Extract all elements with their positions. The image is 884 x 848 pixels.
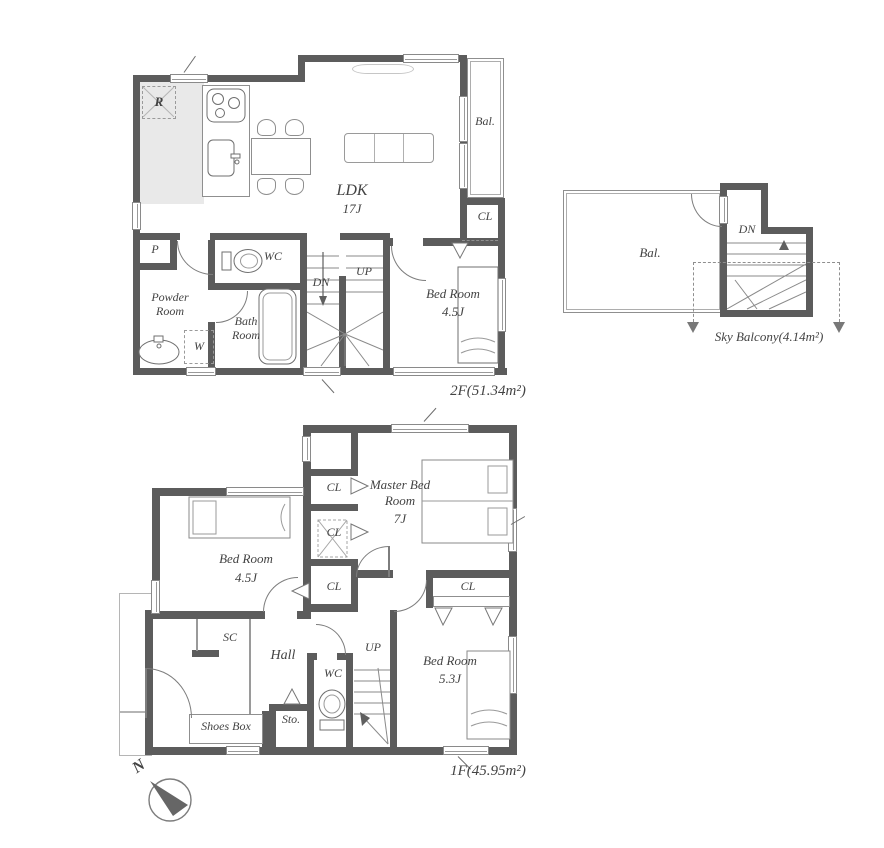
closet-open-front <box>462 240 498 241</box>
partition-line <box>196 619 198 651</box>
chair <box>285 178 304 195</box>
floorplan-page: R W <box>0 0 884 848</box>
sofa-seam <box>403 134 404 162</box>
window <box>151 580 160 614</box>
label-bedroom-a-size: 4.5J <box>220 570 272 586</box>
washer-label: W <box>185 339 213 353</box>
label-master-bedroom: Master Bed Room <box>366 477 434 508</box>
toilet <box>314 688 350 734</box>
wall <box>720 310 813 317</box>
label-up-1f: UP <box>356 640 390 654</box>
bed-master <box>421 459 514 544</box>
entrance-door-arc <box>146 668 192 718</box>
washbasin <box>136 334 182 366</box>
door-arc <box>394 580 427 612</box>
door-arc <box>391 246 426 281</box>
label-bedroom-b-size: 5.3J <box>424 671 476 687</box>
washer-space: W <box>184 330 214 364</box>
wall <box>297 611 311 619</box>
label-pantry: P <box>142 242 168 256</box>
label-closet: CL <box>465 209 505 223</box>
label-balcony: Bal. <box>464 114 506 128</box>
label-shoes-box: Shoes Box <box>191 719 261 733</box>
wall <box>426 578 433 608</box>
projection-line <box>693 262 840 263</box>
wall <box>262 711 269 747</box>
label-bath-room: Bath Room <box>222 314 270 343</box>
wall <box>133 233 180 240</box>
fridge-label: R <box>143 94 175 110</box>
label-wc-1f: WC <box>316 666 350 680</box>
label-sky-down: DN <box>729 222 765 236</box>
fold-door-mark <box>484 607 504 627</box>
door-arc <box>316 624 346 655</box>
wall <box>390 610 397 755</box>
sky-area-label: Sky Balcony(4.14m²) <box>698 329 840 345</box>
wall <box>426 570 517 578</box>
window <box>391 424 469 433</box>
wall <box>300 240 307 375</box>
projection-line <box>693 262 694 322</box>
tv-board <box>352 64 414 74</box>
label-sc: SC <box>212 630 248 644</box>
label-closet-1: CL <box>314 480 354 494</box>
window <box>303 367 341 376</box>
sofa <box>344 133 434 163</box>
wall <box>133 263 177 270</box>
wall <box>192 650 219 657</box>
window <box>393 367 495 376</box>
vent-tick <box>184 56 196 73</box>
label-closet-2: CL <box>314 525 354 539</box>
label-closet-right: CL <box>448 579 488 593</box>
label-bedroom-a: Bed Room <box>198 551 294 567</box>
compass-icon <box>140 770 200 830</box>
kitchen-sink <box>205 136 241 180</box>
sofa-seam <box>374 134 375 162</box>
wall <box>152 611 265 619</box>
window <box>403 54 459 63</box>
bed <box>188 494 292 540</box>
vent-tick <box>424 408 437 422</box>
stairs-2f <box>307 244 383 368</box>
label-bedroom-b: Bed Room <box>402 653 498 669</box>
door-leaf <box>145 668 147 718</box>
label-hall: Hall <box>258 648 308 665</box>
door-arc <box>356 546 389 577</box>
label-wc: WC <box>254 249 292 263</box>
label-down: DN <box>303 275 339 289</box>
window <box>186 367 216 376</box>
fold-door-mark <box>450 242 470 260</box>
chair <box>285 119 304 136</box>
fold-door-mark <box>282 688 302 706</box>
label-sky-balcony-bal: Bal. <box>628 245 672 261</box>
projection-line <box>839 262 840 322</box>
wall <box>806 227 813 317</box>
label-ldk: LDK <box>328 181 376 200</box>
stairs-1f <box>354 660 390 746</box>
wall <box>133 75 305 82</box>
fold-door-mark <box>434 607 454 627</box>
wall <box>383 245 390 375</box>
label-bedroom-2f-size: 4.5J <box>428 304 478 320</box>
chair <box>257 119 276 136</box>
door-leaf <box>388 546 390 577</box>
stove <box>205 87 249 125</box>
label-ldk-size: 17J <box>332 201 372 217</box>
window <box>170 74 208 83</box>
label-closet-3: CL <box>314 579 354 593</box>
wall <box>351 425 358 476</box>
stairs-sky <box>727 234 806 310</box>
label-powder-room: Powder Room <box>136 290 204 319</box>
window <box>443 746 489 755</box>
wall <box>307 653 314 747</box>
partition-line <box>249 619 251 715</box>
vent-tick <box>322 379 335 393</box>
wall <box>210 233 307 240</box>
label-sto: Sto. <box>273 712 309 726</box>
wall <box>311 504 358 511</box>
floor2-area-label: 2F(51.34m²) <box>428 382 548 400</box>
chair <box>257 178 276 195</box>
closet-rod <box>433 596 510 607</box>
window <box>302 436 311 462</box>
floor1-area-label: 1F(45.95m²) <box>428 762 548 780</box>
label-bedroom-2f: Bed Room <box>405 286 501 302</box>
label-up: UP <box>346 264 382 278</box>
wall <box>340 233 390 240</box>
label-master-size: 7J <box>383 511 417 527</box>
dining-table <box>251 138 311 175</box>
window <box>132 202 141 230</box>
window <box>226 746 260 755</box>
door-arc <box>177 241 213 275</box>
refrigerator: R <box>142 86 176 119</box>
